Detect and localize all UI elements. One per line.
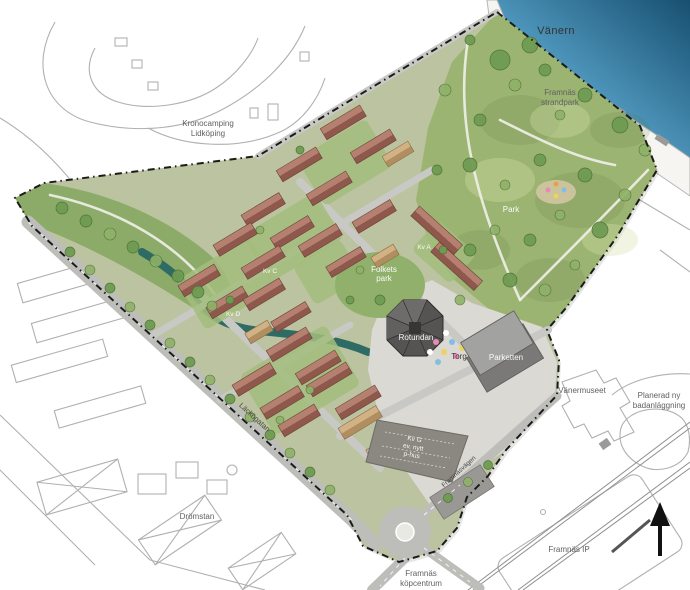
label-vanern: Vänern xyxy=(537,25,575,37)
rotundan-building xyxy=(387,300,443,356)
context-dromstan-buildings xyxy=(138,462,237,494)
label-vanermuseet: Vänermuseet xyxy=(558,386,606,395)
label-folkets-park-line2: park xyxy=(376,274,393,283)
site-plan-map: Vänern Framnäs strandpark Kronocamping L… xyxy=(0,0,690,590)
label-torg: Torg xyxy=(451,352,467,361)
label-kopcentrum-line2: köpcentrum xyxy=(400,579,442,588)
context-vanermuseet-building xyxy=(562,370,634,450)
label-kronocamping-line2: Lidköping xyxy=(191,129,225,138)
label-kv-d: Kv D xyxy=(226,311,240,318)
label-badanlaggning-line1: Planerad ny xyxy=(638,391,681,400)
label-parketten: Parketten xyxy=(489,353,523,362)
label-kopcentrum-line1: Framnäs xyxy=(405,569,437,578)
label-badanlaggning-line2: badanläggning xyxy=(633,401,686,410)
context-east-lines xyxy=(640,200,690,272)
label-strandpark-line1: Framnäs xyxy=(544,88,576,97)
label-framnas-ip: Framnäs IP xyxy=(548,545,589,554)
label-kv-c: Kv C xyxy=(263,268,277,275)
playground xyxy=(536,180,576,204)
label-folkets-park-line1: Folkets xyxy=(371,265,397,274)
label-dromstan: Drömstan xyxy=(180,512,215,521)
label-park: Park xyxy=(503,205,520,214)
label-kronocamping-line1: Kronocamping xyxy=(182,119,234,128)
label-strandpark-line2: strandpark xyxy=(541,98,580,107)
label-kv-a: Kv A xyxy=(417,244,431,251)
label-rotundan: Rotundan xyxy=(399,333,434,342)
